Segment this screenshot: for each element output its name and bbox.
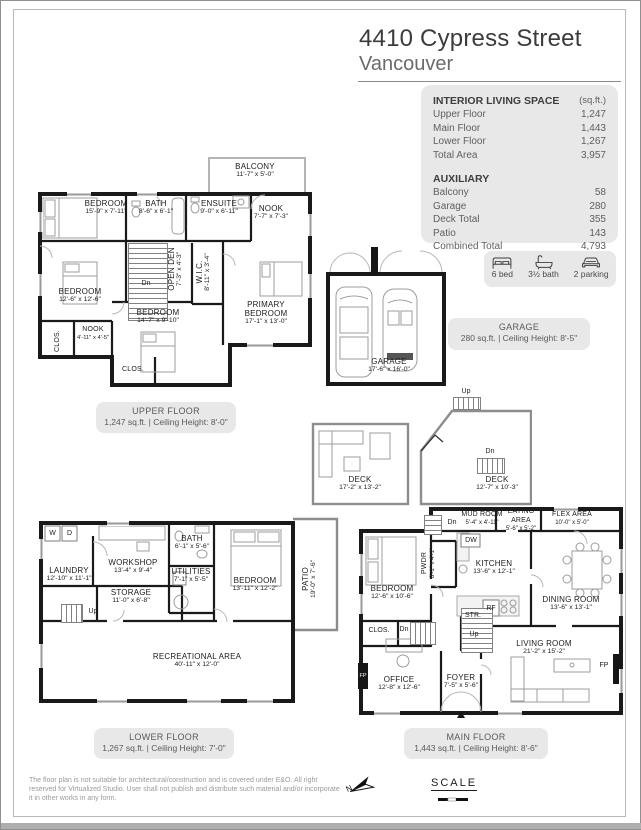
window — [39, 644, 44, 668]
garage-plan: GARAGE17'-6" x 16'-0" — [323, 247, 449, 389]
mudroom-stairs — [424, 515, 442, 535]
room-label-living: LIVING ROOM21'-2" x 15'-2" — [504, 639, 584, 657]
window — [619, 594, 624, 616]
row-label: Balcony — [433, 186, 469, 200]
bed-count: 6 bed — [491, 270, 513, 279]
row-value: 1,267 — [581, 135, 606, 149]
fireplace-label: FP — [358, 667, 368, 685]
bath-icon — [534, 254, 554, 270]
room-label-laundry: LAUNDRY12'-10" x 11'-1" — [41, 566, 97, 584]
row-value: 3,957 — [581, 149, 606, 163]
room-label-storage: STORAGE11'-0" x 6'-8" — [103, 588, 159, 606]
stairs-down-label: Dn — [480, 448, 500, 456]
dishwasher-label: DW — [462, 537, 480, 545]
area-summary-box: INTERIOR LIVING SPACE (sq.ft.) Upper Flo… — [421, 85, 618, 243]
north-arrow-icon: N — [344, 771, 382, 803]
floor-plan-page: 4410 Cypress Street Vancouver INTERIOR L… — [0, 0, 641, 830]
room-label-workshop: WORKSHOP13'-4" x 9'-4" — [99, 558, 167, 576]
washer-label: W — [45, 530, 60, 538]
deck-stairs-down — [477, 458, 505, 474]
row-value: 355 — [589, 213, 606, 227]
window — [67, 192, 91, 197]
feature-parking: 2 parking — [574, 254, 609, 279]
features-box: 6 bed 3½ bath 2 parking — [484, 251, 616, 287]
disclaimer-text: The floor plan is not suitable for archi… — [29, 776, 341, 803]
stairs-down-label: Dn — [394, 626, 414, 634]
fridge-label: RF — [483, 605, 499, 613]
north-label: N — [345, 783, 354, 794]
room-label-dining: DINING ROOM13'-6" x 13'-1" — [540, 595, 602, 613]
window — [247, 699, 273, 704]
bath-count: 3½ bath — [528, 270, 559, 279]
interior-heading-row: INTERIOR LIVING SPACE (sq.ft.) — [433, 94, 606, 108]
window — [619, 669, 624, 693]
row-label: Total Area — [433, 149, 477, 163]
room-label-bedroom2: BEDROOM12'-6" x 12'-6" — [48, 287, 112, 305]
room-label-nook2: NOOK4'-11" x 4'-5" — [73, 325, 113, 343]
window — [38, 212, 43, 232]
lower-stairs — [61, 604, 83, 623]
feature-bed: 6 bed — [491, 254, 513, 279]
bed-icon — [491, 254, 513, 270]
row-label: Main Floor — [433, 122, 480, 136]
window — [107, 521, 129, 526]
header-divider — [358, 81, 621, 82]
stairs-up-label: Up — [462, 631, 486, 639]
summary-row: Main Floor1,443 — [433, 122, 606, 136]
upper-floor-name: UPPER FLOOR — [96, 402, 236, 417]
lower-floor-plan: Up W D LAUNDRY12'-10" x 11'-1" WORKSHOP1… — [37, 514, 339, 724]
window — [498, 711, 522, 716]
fireplace-label: FP — [596, 662, 612, 670]
page-title: 4410 Cypress Street — [359, 25, 582, 53]
room-label-bath: BATH8'-6" x 6'-1" — [126, 199, 186, 217]
lower-floor-box: LOWER FLOOR 1,267 sq.ft. | Ceiling Heigh… — [94, 728, 234, 759]
lower-floor-name: LOWER FLOOR — [94, 728, 234, 743]
window — [247, 343, 273, 348]
stairs-up-label: Up — [83, 608, 103, 616]
garage-info-box: GARAGE 280 sq.ft. | Ceiling Height: 8'-5… — [448, 318, 590, 350]
auxiliary-heading: AUXILIARY — [433, 172, 489, 186]
room-label-primary: PRIMARY BEDROOM17'-1" x 13'-0" — [237, 300, 295, 327]
room-label-flex: FLEX AREA10'-0" x 5'-0" — [544, 510, 600, 528]
room-label-deck2: DECK12'-7" x 10'-3" — [468, 475, 526, 493]
deck-stairs-up — [453, 397, 481, 410]
page-bottom-strip — [1, 823, 641, 829]
room-label-nook: NOOK7'-7" x 7'-3" — [241, 204, 301, 222]
row-label: Patio — [433, 227, 456, 241]
interior-heading: INTERIOR LIVING SPACE — [433, 94, 559, 108]
garage-info: 280 sq.ft. | Ceiling Height: 8'-5" — [448, 333, 590, 344]
stairs-label: STR. — [458, 612, 488, 620]
row-value: 143 — [589, 227, 606, 241]
row-value: 1,247 — [581, 108, 606, 122]
auxiliary-heading-row: AUXILIARY — [433, 172, 606, 186]
scale-label: SCALE — [431, 777, 477, 791]
summary-row: Balcony58 — [433, 186, 606, 200]
room-label-balcony: BALCONY11'-7" x 5'-0" — [215, 162, 295, 180]
window — [308, 274, 313, 298]
room-label-eating: EATING AREA5'-6" x 5'-2" — [500, 507, 542, 534]
interior-unit: (sq.ft.) — [579, 94, 606, 108]
window — [308, 214, 313, 236]
row-value: 280 — [589, 200, 606, 214]
window — [97, 699, 127, 704]
window — [137, 192, 157, 197]
car-icon — [580, 254, 602, 270]
row-label: Upper Floor — [433, 108, 486, 122]
scale-bar-icon — [436, 796, 472, 804]
north-arrow: N — [344, 771, 382, 808]
garage-name: GARAGE — [448, 318, 590, 333]
main-floor-info: 1,443 sq.ft. | Ceiling Height: 8'-6" — [404, 743, 548, 754]
upper-floor-info: 1,247 sq.ft. | Ceiling Height: 8'-0" — [96, 417, 236, 428]
stairs-down-label: Dn — [134, 280, 158, 288]
room-label-patio: PATIO19'-0" x 7'-6" — [301, 544, 327, 614]
window — [359, 554, 364, 576]
window — [187, 699, 221, 704]
room-label-bedroom: BEDROOM13'-11" x 12'-2" — [223, 576, 287, 594]
room-label-bedroom: BEDROOM12'-6" x 10'-6" — [362, 584, 422, 602]
row-label: Lower Floor — [433, 135, 486, 149]
room-label-rec: RECREATIONAL AREA40'-11" x 12'-0" — [117, 652, 277, 670]
room-label-foyer: FOYER7'-5" x 5'-6" — [440, 673, 482, 691]
window — [39, 539, 44, 559]
room-label-deck1: DECK17'-2" x 13'-2" — [330, 475, 390, 493]
room-label-bath: BATH6'-1" x 5'-6" — [169, 534, 215, 552]
lower-floor-info: 1,267 sq.ft. | Ceiling Height: 7'-0" — [94, 743, 234, 754]
stairs-up-label: Up — [454, 388, 478, 396]
row-label: Deck Total — [433, 213, 480, 227]
window — [619, 549, 624, 573]
upper-floor-plan: BALCONY11'-7" x 5'-0" BEDROOM15'-9" x 7'… — [37, 154, 313, 394]
row-value: 1,443 — [581, 122, 606, 136]
room-label-garage: GARAGE17'-6" x 16'-0" — [353, 357, 425, 375]
room-label-bedroom3: BEDROOM14'-7" x 9'-10" — [128, 308, 188, 326]
dryer-label: D — [62, 530, 77, 538]
room-label-open-den: OPEN DEN7'-3" x 4'-3" — [167, 239, 187, 299]
main-floor-box: MAIN FLOOR 1,443 sq.ft. | Ceiling Height… — [404, 728, 548, 759]
parking-count: 2 parking — [574, 270, 609, 279]
room-label-pwdr: PWDR8'-1" x 4'-1" — [420, 538, 442, 588]
closet-label: CLOS. — [113, 365, 153, 374]
summary-row: Deck Total355 — [433, 213, 606, 227]
page-subtitle: Vancouver — [359, 53, 453, 76]
room-label-wic: W.I.C.8'-11" x 3'-4" — [195, 242, 215, 302]
upper-floor-box: UPPER FLOOR 1,247 sq.ft. | Ceiling Heigh… — [96, 402, 236, 433]
scale-indicator: SCALE — [431, 777, 477, 809]
room-label-utilities: UTILITIES7'-1" x 5'-5" — [165, 567, 217, 585]
room-label-office: OFFICE12'-8" x 12'-6" — [370, 675, 428, 693]
main-floor-plan: MUD ROOM5'-4" x 4'-11" EATING AREA5'-6" … — [358, 499, 626, 725]
summary-row: Patio143 — [433, 227, 606, 241]
summary-row: Garage280 — [433, 200, 606, 214]
summary-row: Total Area3,957 — [433, 149, 606, 163]
room-label-kitchen: KITCHEN13'-6" x 12'-1" — [462, 559, 526, 577]
row-value: 58 — [595, 186, 606, 200]
feature-bath: 3½ bath — [528, 254, 559, 279]
main-floor-name: MAIN FLOOR — [404, 728, 548, 743]
summary-row: Lower Floor1,267 — [433, 135, 606, 149]
closet-label: CLOS. — [53, 323, 63, 359]
row-label: Garage — [433, 200, 466, 214]
window — [374, 711, 400, 716]
window — [38, 274, 43, 296]
summary-row: Upper Floor1,247 — [433, 108, 606, 122]
closet-label: CLOS. — [364, 627, 394, 635]
